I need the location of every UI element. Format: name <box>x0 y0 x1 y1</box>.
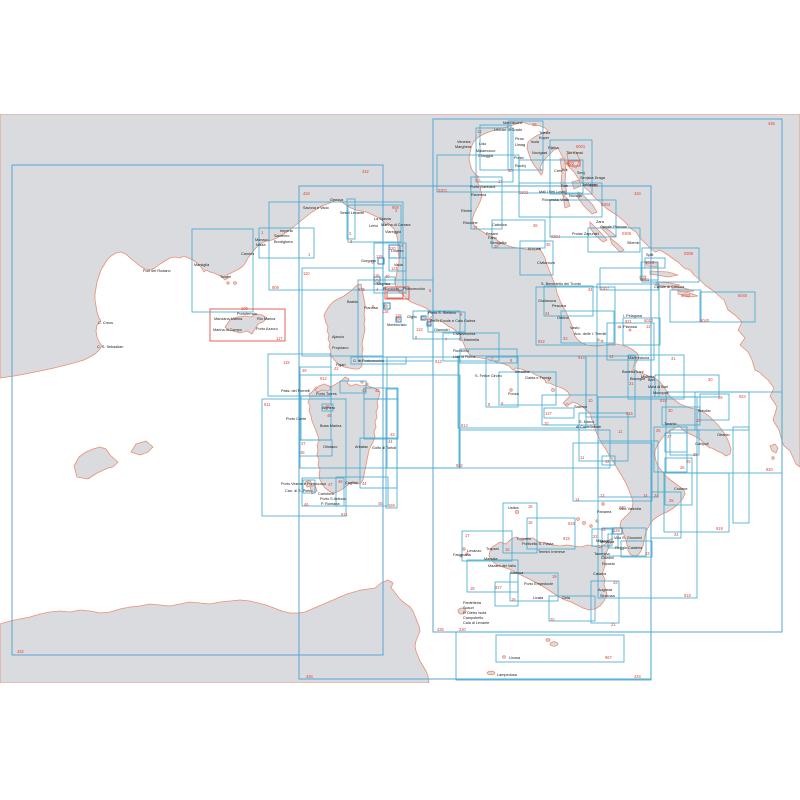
svg-text:Porto S.Antioco: Porto S.Antioco <box>320 497 346 501</box>
svg-text:Split: Split <box>646 253 654 257</box>
svg-text:128: 128 <box>613 528 621 533</box>
svg-text:Tolone: Tolone <box>220 275 231 279</box>
svg-text:S. Felice Circeo: S. Felice Circeo <box>475 374 502 378</box>
svg-text:Bordighera: Bordighera <box>274 240 293 244</box>
svg-text:924: 924 <box>739 394 747 399</box>
svg-text:Novalja: Novalja <box>569 194 583 198</box>
svg-text:Montecristo: Montecristo <box>387 323 407 327</box>
svg-text:Licata: Licata <box>533 596 544 600</box>
svg-text:0302: 0302 <box>519 190 529 195</box>
svg-text:Novigrad: Novigrad <box>532 151 547 155</box>
svg-text:917: 917 <box>495 585 503 590</box>
svg-text:Reggio Calabria: Reggio Calabria <box>615 546 643 550</box>
svg-text:909: 909 <box>272 285 280 290</box>
svg-text:Chioggia: Chioggia <box>478 154 494 158</box>
svg-text:49: 49 <box>302 368 307 373</box>
svg-text:Monopoli: Monopoli <box>653 391 669 395</box>
svg-text:Mola di Bari: Mola di Bari <box>648 385 668 389</box>
svg-text:Lido: Lido <box>479 142 486 146</box>
svg-text:Umag: Umag <box>515 143 525 147</box>
svg-text:Porto Ercole e Cala Galera: Porto Ercole e Cala Galera <box>430 319 476 323</box>
svg-text:Alghero: Alghero <box>322 406 335 410</box>
svg-text:29: 29 <box>718 395 723 400</box>
svg-text:Marsala: Marsala <box>484 557 498 561</box>
svg-text:31: 31 <box>629 381 634 386</box>
svg-text:12: 12 <box>646 324 651 329</box>
svg-text:Monfalcone: Monfalcone <box>503 121 523 125</box>
svg-text:16: 16 <box>505 547 510 552</box>
svg-text:Lido di Roma: Lido di Roma <box>453 355 476 359</box>
svg-text:Trieste: Trieste <box>539 131 550 135</box>
svg-text:Villa S. Giovanni: Villa S. Giovanni <box>614 536 642 540</box>
svg-text:Rimini: Rimini <box>461 209 472 213</box>
svg-text:13: 13 <box>600 493 605 498</box>
svg-text:Bastia: Bastia <box>347 300 358 304</box>
svg-text:0306: 0306 <box>622 231 632 236</box>
svg-text:Bosa Marina: Bosa Marina <box>320 424 342 428</box>
svg-text:Zara: Zara <box>596 220 605 224</box>
svg-text:S. Marinella: S. Marinella <box>459 338 480 342</box>
svg-text:Marghera: Marghera <box>455 145 472 149</box>
svg-text:Litorale di Grado: Litorale di Grado <box>494 128 522 132</box>
svg-text:434: 434 <box>634 674 642 679</box>
svg-text:25: 25 <box>669 498 674 503</box>
svg-text:Canale Pasman: Canale Pasman <box>600 225 627 229</box>
svg-text:28: 28 <box>693 452 698 457</box>
svg-text:Savona e Vado: Savona e Vado <box>303 206 329 210</box>
svg-text:Civitanova: Civitanova <box>537 261 556 265</box>
svg-text:Vada: Vada <box>394 263 403 267</box>
svg-text:432: 432 <box>17 649 25 654</box>
svg-text:Porto S. Stefano: Porto S. Stefano <box>428 311 456 315</box>
svg-text:115: 115 <box>376 254 383 259</box>
svg-text:116: 116 <box>373 273 380 278</box>
svg-text:Koper: Koper <box>539 136 550 140</box>
svg-text:16: 16 <box>476 178 481 183</box>
svg-text:Genova: Genova <box>330 198 344 202</box>
svg-text:11: 11 <box>580 455 585 460</box>
svg-text:Portoferraio: Portoferraio <box>237 312 257 316</box>
svg-text:G. di Portovecchio: G. di Portovecchio <box>353 359 384 363</box>
svg-text:Marsiglia: Marsiglia <box>194 263 210 267</box>
svg-text:Linosa: Linosa <box>509 656 521 660</box>
svg-text:Ajaccio: Ajaccio <box>332 335 344 339</box>
svg-text:41: 41 <box>362 388 367 393</box>
svg-text:Portovecchio: Portovecchio <box>403 287 425 291</box>
svg-text:23: 23 <box>645 551 650 556</box>
svg-text:29: 29 <box>696 418 701 423</box>
svg-text:Porto Conte: Porto Conte <box>286 417 306 421</box>
svg-text:Ancona: Ancona <box>528 247 542 251</box>
svg-text:Civitavecchia: Civitavecchia <box>453 332 476 336</box>
svg-text:31: 31 <box>671 356 676 361</box>
svg-text:6002: 6002 <box>565 161 575 166</box>
svg-text:Foci del Rodano: Foci del Rodano <box>143 269 171 273</box>
svg-text:Marina di Carrara: Marina di Carrara <box>381 223 411 227</box>
svg-text:6001: 6001 <box>576 144 586 149</box>
svg-text:Catania: Catania <box>593 572 607 576</box>
svg-text:Gaeta e Formia: Gaeta e Formia <box>525 376 552 380</box>
svg-text:Oristano: Oristano <box>323 445 337 449</box>
svg-text:Ortona: Ortona <box>557 316 569 320</box>
svg-text:Capraia: Capraia <box>377 282 391 286</box>
svg-text:Rovinj: Rovinj <box>515 164 526 168</box>
svg-text:Campobello: Campobello <box>463 616 483 620</box>
svg-text:33: 33 <box>613 580 618 585</box>
svg-text:Augusta: Augusta <box>598 588 613 592</box>
svg-text:27: 27 <box>667 434 672 439</box>
svg-text:Rijeka: Rijeka <box>548 146 559 150</box>
svg-text:Sestri Levante: Sestri Levante <box>340 211 364 215</box>
svg-text:Gallipoli: Gallipoli <box>695 442 709 446</box>
svg-text:913: 913 <box>435 359 443 364</box>
svg-text:119: 119 <box>283 360 290 365</box>
svg-text:Pass. dei Fornelli: Pass. dei Fornelli <box>281 389 310 393</box>
svg-text:Mali i Veli Losinj: Mali i Veli Losinj <box>539 190 566 194</box>
svg-text:Vibo Valentia: Vibo Valentia <box>619 507 642 511</box>
svg-text:Terracina: Terracina <box>514 370 531 374</box>
svg-text:915: 915 <box>563 536 571 541</box>
svg-text:34: 34 <box>545 311 550 316</box>
svg-text:Malamocco: Malamocco <box>476 149 495 153</box>
svg-text:20: 20 <box>508 168 513 173</box>
svg-text:S. Marco: S. Marco <box>579 420 594 424</box>
svg-text:Favignana: Favignana <box>453 553 472 557</box>
svg-text:Ravenna: Ravenna <box>471 193 487 197</box>
svg-text:C. S. Sebastian: C. S. Sebastian <box>97 345 123 349</box>
svg-text:110: 110 <box>303 271 310 276</box>
svg-text:434: 434 <box>303 191 311 196</box>
svg-text:I. Pelagosa: I. Pelagosa <box>623 314 643 318</box>
svg-text:18: 18 <box>477 129 482 134</box>
svg-text:19: 19 <box>511 597 516 602</box>
svg-text:42: 42 <box>605 459 610 464</box>
svg-text:435: 435 <box>437 627 445 632</box>
svg-text:Arbatax: Arbatax <box>355 445 368 449</box>
svg-text:10: 10 <box>588 398 593 403</box>
svg-text:230: 230 <box>459 627 467 632</box>
svg-text:0304: 0304 <box>601 202 611 207</box>
svg-text:967: 967 <box>605 655 613 660</box>
svg-text:Prolaz Zapuntel: Prolaz Zapuntel <box>572 232 599 236</box>
svg-text:Rovanska Vrata: Rovanska Vrata <box>542 198 570 202</box>
svg-text:30: 30 <box>708 377 713 382</box>
svg-text:Cagliari: Cagliari <box>345 481 358 485</box>
svg-text:435: 435 <box>768 121 776 126</box>
svg-text:434: 434 <box>306 674 314 679</box>
svg-text:921: 921 <box>625 319 633 324</box>
svg-text:Sibenic: Sibenic <box>627 241 640 245</box>
svg-text:Fiumicino: Fiumicino <box>453 349 469 353</box>
svg-text:127: 127 <box>545 411 553 416</box>
svg-text:I. Pianosa: I. Pianosa <box>620 325 638 329</box>
svg-text:Monaco: Monaco <box>255 238 269 242</box>
svg-text:Rab: Rab <box>561 184 568 188</box>
svg-text:Piran: Piran <box>515 137 524 141</box>
svg-text:Milazzo: Milazzo <box>596 539 609 543</box>
svg-text:Porto Torres: Porto Torres <box>316 392 337 396</box>
svg-text:47: 47 <box>301 441 306 446</box>
svg-text:Sciacca: Sciacca <box>510 571 524 575</box>
svg-text:24: 24 <box>654 493 659 498</box>
svg-text:Isola: Isola <box>531 140 540 144</box>
svg-text:17: 17 <box>465 533 470 538</box>
svg-text:46: 46 <box>304 502 309 507</box>
svg-text:0301: 0301 <box>438 188 448 193</box>
svg-text:6023: 6023 <box>645 260 655 265</box>
svg-text:918: 918 <box>568 521 576 526</box>
svg-text:6033: 6033 <box>681 293 691 298</box>
svg-text:Pantelleria: Pantelleria <box>463 601 482 605</box>
svg-text:25: 25 <box>686 459 691 464</box>
svg-text:Cattolica: Cattolica <box>492 223 508 227</box>
svg-text:Fano: Fano <box>488 236 497 240</box>
svg-text:44: 44 <box>362 481 367 486</box>
svg-text:26: 26 <box>680 465 685 470</box>
svg-text:14: 14 <box>643 493 648 498</box>
svg-text:119: 119 <box>395 313 402 318</box>
svg-text:23: 23 <box>601 527 606 532</box>
svg-text:0305: 0305 <box>684 251 694 256</box>
svg-text:975: 975 <box>358 287 366 292</box>
svg-text:Canale di Curzola: Canale di Curzola <box>654 285 685 289</box>
svg-text:Vasto: Vasto <box>570 326 579 330</box>
svg-text:912: 912 <box>456 463 464 468</box>
svg-text:14: 14 <box>598 544 603 549</box>
svg-text:36: 36 <box>533 223 538 228</box>
svg-text:Senjska Draga: Senjska Draga <box>580 176 606 180</box>
svg-text:118: 118 <box>382 309 389 314</box>
svg-text:Senigallia: Senigallia <box>490 241 507 245</box>
svg-text:43: 43 <box>390 432 395 437</box>
svg-text:Senj: Senj <box>577 171 585 175</box>
svg-text:Otranto: Otranto <box>717 433 730 437</box>
svg-text:0307: 0307 <box>600 286 610 291</box>
svg-text:Pescara: Pescara <box>552 304 567 308</box>
svg-text:Porec: Porec <box>514 156 524 160</box>
svg-text:14: 14 <box>575 497 580 502</box>
svg-text:159: 159 <box>388 503 396 508</box>
svg-text:122: 122 <box>416 327 424 332</box>
svg-text:Porto Empedocle: Porto Empedocle <box>524 582 553 586</box>
svg-text:Porto Vesme e Portoscuso: Porto Vesme e Portoscuso <box>281 482 326 486</box>
svg-text:Lerici: Lerici <box>369 224 378 228</box>
svg-text:Barletta: Barletta <box>622 370 636 374</box>
svg-text:Termini Imerese: Termini Imerese <box>538 550 565 554</box>
svg-text:Pianosa: Pianosa <box>364 306 379 310</box>
svg-text:Ponza: Ponza <box>508 392 520 396</box>
svg-text:914: 914 <box>578 355 586 360</box>
svg-text:17: 17 <box>498 179 503 184</box>
svg-text:918: 918 <box>660 398 668 403</box>
svg-text:di Castellabate: di Castellabate <box>576 425 601 429</box>
svg-text:Piombino: Piombino <box>383 287 399 291</box>
svg-text:Lampedusa: Lampedusa <box>497 673 518 677</box>
svg-text:48: 48 <box>300 450 305 455</box>
svg-text:918: 918 <box>684 593 692 598</box>
svg-text:10: 10 <box>544 421 549 426</box>
svg-text:45: 45 <box>378 501 383 506</box>
svg-text:Porto Azzuro: Porto Azzuro <box>256 327 278 331</box>
svg-text:6021: 6021 <box>640 277 650 282</box>
svg-text:6010: 6010 <box>644 318 654 323</box>
svg-text:44: 44 <box>388 439 393 444</box>
svg-text:15: 15 <box>528 520 533 525</box>
svg-text:920: 920 <box>766 467 774 472</box>
svg-text:17: 17 <box>473 225 478 230</box>
svg-text:Giannutri: Giannutri <box>434 328 450 332</box>
svg-text:434: 434 <box>634 191 642 196</box>
svg-text:Tihi Kanal: Tihi Kanal <box>566 151 583 155</box>
svg-text:Cala di Levante: Cala di Levante <box>463 621 489 625</box>
svg-text:919: 919 <box>716 526 724 531</box>
svg-text:Crotone: Crotone <box>674 487 688 491</box>
svg-text:Golfo di Tortoli: Golfo di Tortoli <box>372 446 396 450</box>
svg-text:914: 914 <box>461 423 469 428</box>
svg-text:33: 33 <box>563 336 568 341</box>
svg-text:0304: 0304 <box>551 234 561 239</box>
svg-text:Siracusa: Siracusa <box>600 594 616 598</box>
svg-text:19: 19 <box>532 122 537 127</box>
svg-text:Manfredonia: Manfredonia <box>628 356 650 360</box>
svg-text:49: 49 <box>327 413 332 418</box>
svg-text:Bari: Bari <box>648 378 655 382</box>
svg-text:Trani: Trani <box>635 370 644 374</box>
svg-text:Marina di Campo: Marina di Campo <box>213 328 242 332</box>
svg-text:47: 47 <box>328 482 333 487</box>
svg-text:Panarea: Panarea <box>597 510 612 514</box>
svg-text:432: 432 <box>362 169 370 174</box>
svg-text:Marciana Marina: Marciana Marina <box>214 317 243 321</box>
svg-text:18: 18 <box>470 586 475 591</box>
svg-text:16: 16 <box>528 504 533 509</box>
svg-text:12: 12 <box>609 354 614 359</box>
svg-text:Ustica: Ustica <box>508 506 519 510</box>
svg-text:Gorgona: Gorgona <box>361 259 377 263</box>
svg-text:Taranto: Taranto <box>664 422 677 426</box>
svg-text:6040: 6040 <box>700 318 710 323</box>
svg-text:117: 117 <box>276 336 283 341</box>
svg-text:Salerno: Salerno <box>574 405 587 409</box>
svg-text:19: 19 <box>552 574 557 579</box>
svg-text:Nizza: Nizza <box>256 243 266 247</box>
svg-text:912: 912 <box>320 376 328 381</box>
svg-text:911: 911 <box>341 512 348 517</box>
svg-text:Gela: Gela <box>562 596 571 600</box>
svg-text:S. Benedetto del Tronto: S. Benedetto del Tronto <box>541 282 581 286</box>
svg-text:Giglio: Giglio <box>407 315 417 319</box>
svg-text:P. Dietro Isola: P. Dietro Isola <box>463 611 487 615</box>
svg-text:Krk: Krk <box>562 168 568 172</box>
svg-text:Mazara del Vallo: Mazara del Vallo <box>488 564 516 568</box>
svg-text:Rio Marina: Rio Marina <box>257 317 276 321</box>
svg-text:109: 109 <box>241 306 249 311</box>
svg-text:20: 20 <box>550 617 555 622</box>
svg-text:Riccione: Riccione <box>463 221 478 225</box>
svg-text:Cres: Cres <box>554 169 562 173</box>
svg-text:911: 911 <box>264 402 271 407</box>
svg-text:46: 46 <box>338 479 343 484</box>
svg-text:Imperia: Imperia <box>280 229 294 233</box>
svg-text:Giulianova: Giulianova <box>538 299 557 303</box>
svg-text:34: 34 <box>588 287 593 292</box>
svg-text:42: 42 <box>375 388 380 393</box>
svg-text:Propriano: Propriano <box>332 346 348 350</box>
svg-text:Porticello S. Flavia: Porticello S. Flavia <box>522 542 554 546</box>
svg-text:Scauri: Scauri <box>463 606 474 610</box>
svg-text:35: 35 <box>546 242 551 247</box>
svg-text:Viareggio: Viareggio <box>385 230 401 234</box>
svg-text:P. Romana: P. Romana <box>321 502 340 506</box>
svg-text:Jablanac: Jablanac <box>582 183 597 187</box>
svg-text:Figari: Figari <box>336 363 346 367</box>
svg-text:Venezia: Venezia <box>457 140 471 144</box>
svg-text:6040: 6040 <box>738 293 748 298</box>
svg-text:Livorno: Livorno <box>391 249 403 253</box>
svg-text:26: 26 <box>656 428 661 433</box>
svg-text:C. Creus: C. Creus <box>98 321 113 325</box>
svg-text:24: 24 <box>674 532 679 537</box>
svg-text:21: 21 <box>611 622 616 627</box>
svg-text:Riposto: Riposto <box>602 562 615 566</box>
svg-text:Carloforte: Carloforte <box>318 492 335 496</box>
svg-text:Sanremo: Sanremo <box>274 234 289 238</box>
svg-text:30: 30 <box>668 408 673 413</box>
svg-text:Porto Garibaldi: Porto Garibaldi <box>470 185 495 189</box>
svg-text:11: 11 <box>618 429 623 434</box>
svg-text:40: 40 <box>385 274 390 279</box>
svg-text:Can. di S. Pietro: Can. di S. Pietro <box>285 489 313 493</box>
svg-text:Trapani: Trapani <box>486 547 499 551</box>
svg-text:Palermo: Palermo <box>517 537 531 541</box>
svg-text:Anc. delle I. Tremiti: Anc. delle I. Tremiti <box>574 332 606 336</box>
svg-text:Cannes: Cannes <box>241 252 254 256</box>
svg-text:Brindisi: Brindisi <box>698 409 711 413</box>
svg-text:Giardini: Giardini <box>601 556 614 560</box>
svg-text:922: 922 <box>538 339 546 344</box>
svg-text:La Spezia: La Spezia <box>374 217 392 221</box>
svg-text:915: 915 <box>626 411 634 416</box>
